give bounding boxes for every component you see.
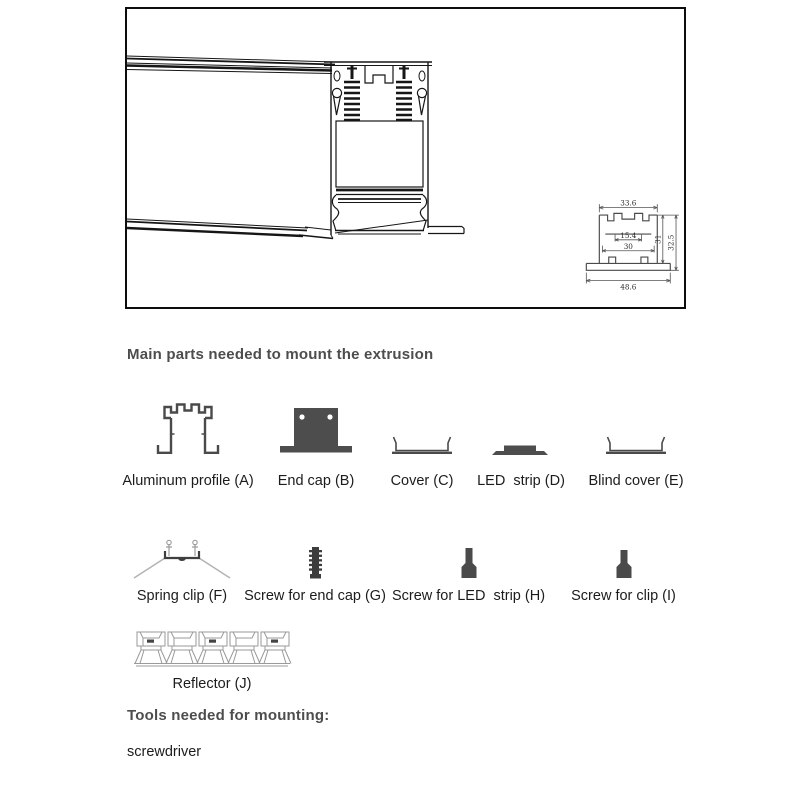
screw-end-cap-icon [240,536,390,580]
part-cell-aluminum-profile: Aluminum profile (A) [118,394,258,489]
spring-right-icon [396,66,412,120]
screw-clip-icon [556,536,691,580]
dim-base-width: 48.6 [620,283,637,292]
part-label: Blind cover (E) [588,473,683,489]
figure-box: 33.6 15.4 30 31 32.5 48.6 [125,7,686,309]
screw-led-strip-icon [386,536,551,580]
end-cap-icon [260,394,372,456]
part-cell-led-strip: LED strip (D) [462,394,580,489]
dim-channel-width: 30 [624,242,634,251]
part-label: Reflector (J) [173,676,252,692]
part-cell-blind-cover: Blind cover (E) [574,394,698,489]
part-cell-screw-led-strip: Screw for LED strip (H) [386,536,551,604]
aluminum-profile-icon [118,394,258,456]
spring-clip-icon [112,536,252,580]
page-root: 33.6 15.4 30 31 32.5 48.6 [0,0,800,800]
part-label: Screw for end cap (G) [244,588,386,604]
isometric-profile-drawing [127,56,464,239]
figure-canvas: 33.6 15.4 30 31 32.5 48.6 [127,9,684,307]
led-strip-icon [462,394,580,456]
tool-item: screwdriver [127,744,201,760]
cover-icon [372,394,472,456]
part-cell-reflector: Reflector (J) [122,626,302,692]
spring-left-icon [344,66,360,120]
part-cell-screw-clip: Screw for clip (I) [556,536,691,604]
part-label: End cap (B) [278,473,355,489]
part-label: Spring clip (F) [137,588,227,604]
parts-heading: Main parts needed to mount the extrusion [127,346,433,363]
part-label: LED strip (D) [477,473,565,489]
tools-heading: Tools needed for mounting: [127,707,329,724]
dimension-drawing: 33.6 15.4 30 31 32.5 48.6 [586,199,679,292]
part-label: Cover (C) [391,473,454,489]
blind-cover-icon [574,394,698,456]
part-label: Screw for LED strip (H) [392,588,545,604]
reflector-icon [122,626,302,668]
part-cell-end-cap: End cap (B) [260,394,372,489]
dim-overall-height: 32.5 [666,234,675,251]
dim-top-width: 33.6 [620,199,637,208]
dim-inner-height: 31 [653,235,662,244]
part-cell-cover: Cover (C) [372,394,472,489]
part-cell-spring-clip: Spring clip (F) [112,536,252,604]
part-label: Aluminum profile (A) [122,473,253,489]
part-label: Screw for clip (I) [571,588,676,604]
dim-slot-width: 15.4 [620,231,637,240]
part-cell-screw-end-cap: Screw for end cap (G) [240,536,390,604]
